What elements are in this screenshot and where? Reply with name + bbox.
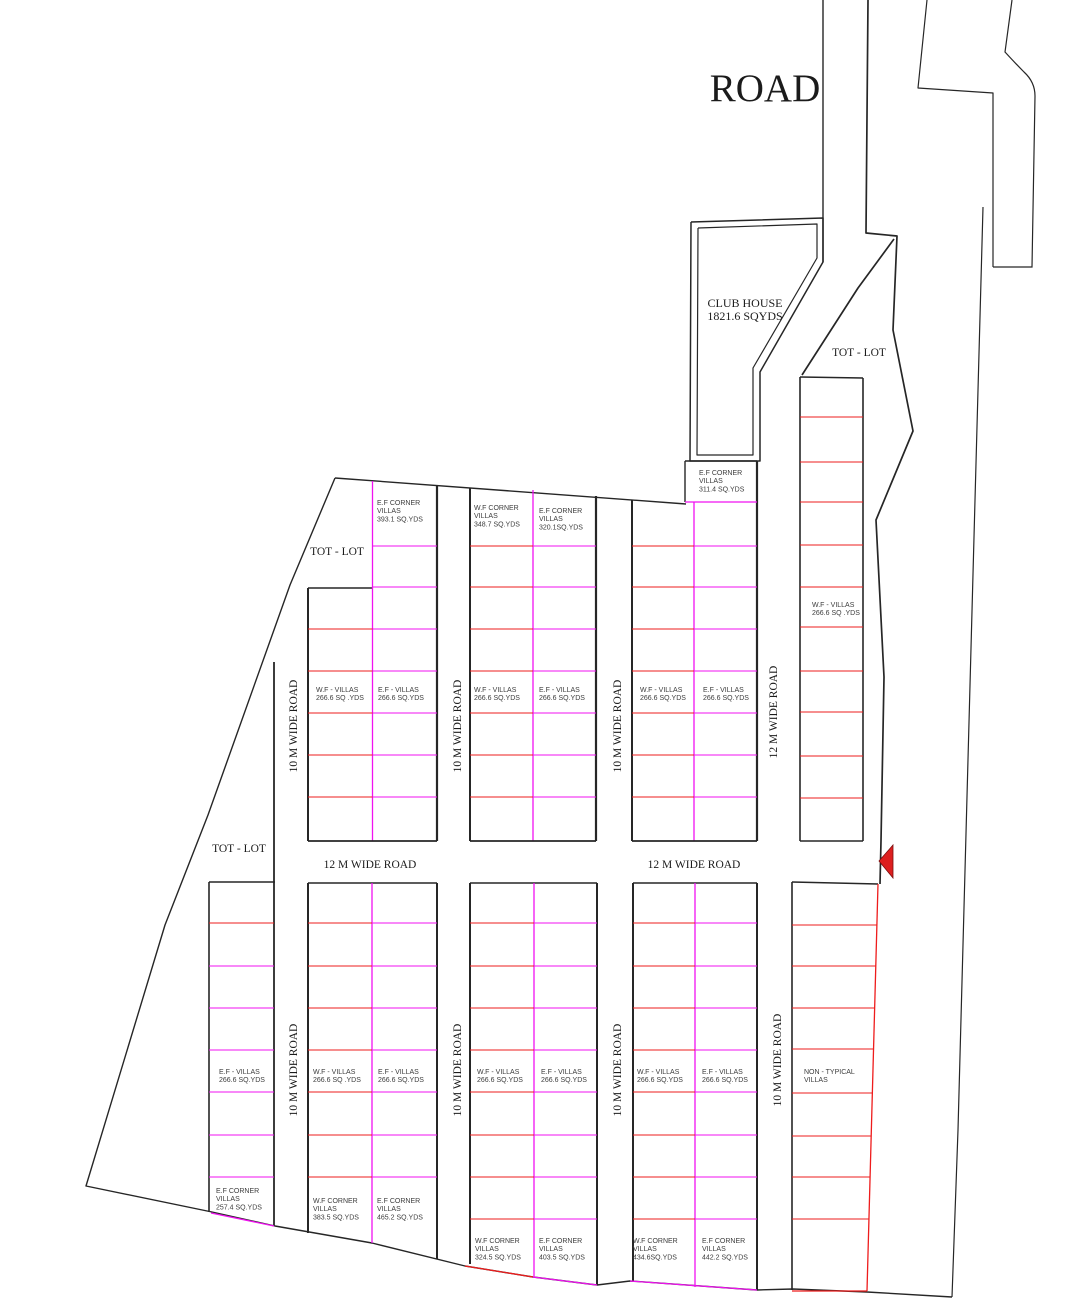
plot-label-wf-villas-c-line-1: 266.6 SQ.YDS <box>640 695 686 702</box>
plot-label-wf-corner-348-line-1: VILLAS <box>474 513 498 520</box>
plot-label-non-typical-line-1: VILLAS <box>804 1077 828 1084</box>
club-house-inner <box>697 224 817 455</box>
plot-label-ef-villas-sw-line-0: E.F - VILLAS <box>219 1069 260 1076</box>
plot-label-ef-corner-465-line-1: VILLAS <box>377 1206 401 1213</box>
plot-label-wf-villas-a-line-0: W.F - VILLAS <box>316 687 359 694</box>
plot-label-ef-corner-320-line-2: 320.1SQ.YDS <box>539 524 583 531</box>
road-label-10m-top-3: 10 M WIDE ROAD <box>612 680 624 773</box>
plot-label-ef-corner-465-line-2: 465.2 SQ.YDS <box>377 1214 423 1221</box>
plot-label-wf-villas-ne-line-1: 266.6 SQ .YDS <box>812 610 860 617</box>
road-title: ROAD <box>710 67 821 110</box>
plot-label-wf-corner-434-line-1: VILLAS <box>633 1246 657 1253</box>
plot-label-wf-corner-434-line-2: 434.6SQ.YDS <box>633 1254 677 1261</box>
site-boundary-west-south <box>86 478 952 1297</box>
tot-lot-label-ne: TOT - LOT <box>832 347 886 359</box>
plot-label-wf-corner-324-line-1: VILLAS <box>475 1246 499 1253</box>
plot-label-wf-villas-b-line-1: 266.6 SQ.YDS <box>474 695 520 702</box>
far-east-boundary <box>952 207 983 1297</box>
road-label-10m-bot-1: 10 M WIDE ROAD <box>288 1024 300 1117</box>
plot-label-ef-villas-b4-line-1: 266.6 SQ.YDS <box>702 1077 748 1084</box>
plot-label-wf-villas-b2-line-0: W.F - VILLAS <box>313 1069 356 1076</box>
plot-boundary-overlay <box>465 1266 533 1277</box>
plot-label-ef-villas-c-line-1: 266.6 SQ.YDS <box>703 695 749 702</box>
plot-label-non-typical-line-0: NON - TYPICAL <box>804 1069 855 1076</box>
plot-label-ef-corner-320-line-1: VILLAS <box>539 516 563 523</box>
plot-label-ef-corner-311-line-0: E.F CORNER <box>699 470 742 477</box>
road-label-12m-vert: 12 M WIDE ROAD <box>768 666 780 759</box>
plot-label-wf-villas-c-line-0: W.F - VILLAS <box>640 687 683 694</box>
plot-label-ef-villas-a-line-0: E.F - VILLAS <box>378 687 419 694</box>
plot-label-ef-villas-c-line-0: E.F - VILLAS <box>703 687 744 694</box>
plot-label-ef-villas-sw-line-1: 266.6 SQ.YDS <box>219 1077 265 1084</box>
plot-label-ef-corner-403-line-0: E.F CORNER <box>539 1238 582 1245</box>
block-edge <box>800 377 863 378</box>
tot-lot-label-sw: TOT - LOT <box>212 843 266 855</box>
road-label-12m-horiz-west: 12 M WIDE ROAD <box>324 859 417 871</box>
plan-geometry <box>86 0 1035 1297</box>
plot-label-ef-corner-465-line-0: E.F CORNER <box>377 1198 420 1205</box>
plot-label-wf-villas-b3-line-1: 266.6 SQ.YDS <box>477 1077 523 1084</box>
plot-label-ef-villas-b-line-1: 266.6 SQ.YDS <box>539 695 585 702</box>
plot-label-wf-corner-434-line-0: W.F CORNER <box>633 1238 678 1245</box>
plot-label-ef-corner-393-line-0: E.F CORNER <box>377 500 420 507</box>
plot-label-ef-corner-257-line-0: E.F CORNER <box>216 1188 259 1195</box>
plot-label-ef-corner-257-line-2: 257.4 SQ.YDS <box>216 1204 262 1211</box>
plot-label-ef-corner-442-line-2: 442.2 SQ.YDS <box>702 1254 748 1261</box>
road-label-10m-top-2: 10 M WIDE ROAD <box>452 680 464 773</box>
plot-label-wf-corner-383-line-0: W.F CORNER <box>313 1198 358 1205</box>
plot-label-ef-villas-b3-line-1: 266.6 SQ.YDS <box>541 1077 587 1084</box>
plot-label-ef-corner-442-line-1: VILLAS <box>702 1246 726 1253</box>
plot-label-ef-villas-b2-line-1: 266.6 SQ.YDS <box>378 1077 424 1084</box>
plot-label-wf-villas-b4-line-1: 266.6 SQ.YDS <box>637 1077 683 1084</box>
plot-label-wf-corner-348-line-0: W.F CORNER <box>474 505 519 512</box>
road-band-outer-edge <box>993 0 1035 267</box>
plot-label-ef-villas-b-line-0: E.F - VILLAS <box>539 687 580 694</box>
plot-label-wf-villas-b3-line-0: W.F - VILLAS <box>477 1069 520 1076</box>
plot-label-ef-villas-b3-line-0: E.F - VILLAS <box>541 1069 582 1076</box>
road-label-12m-horiz-east: 12 M WIDE ROAD <box>648 859 741 871</box>
plot-label-ef-corner-403-line-1: VILLAS <box>539 1246 563 1253</box>
plot-label-ef-corner-393-line-2: 393.1 SQ.YDS <box>377 516 423 523</box>
plot-label-wf-villas-a-line-1: 266.6 SQ .YDS <box>316 695 364 702</box>
road-band-inner-edge <box>918 0 993 267</box>
plan-labels: ROADCLUB HOUSE1821.6 SQYDSTOT - LOTTOT -… <box>212 67 886 1261</box>
plot-label-ef-corner-320-line-0: E.F CORNER <box>539 508 582 515</box>
plot-label-ef-corner-403-line-2: 403.5 SQ.YDS <box>539 1254 585 1261</box>
plot-label-wf-corner-383-line-1: VILLAS <box>313 1206 337 1213</box>
east-inner-boundary <box>866 0 913 884</box>
plot-label-wf-corner-383-line-2: 383.5 SQ.YDS <box>313 1214 359 1221</box>
plot-label-wf-villas-b-line-0: W.F - VILLAS <box>474 687 517 694</box>
road-label-10m-bot-3: 10 M WIDE ROAD <box>612 1024 624 1117</box>
plot-label-ef-corner-257-line-1: VILLAS <box>216 1196 240 1203</box>
plot-label-wf-villas-ne-line-0: W.F - VILLAS <box>812 602 855 609</box>
plot-boundary-overlay <box>630 1281 757 1290</box>
plot-label-ef-corner-393-line-1: VILLAS <box>377 508 401 515</box>
block-edge-red <box>867 884 878 1291</box>
plot-label-ef-villas-a-line-1: 266.6 SQ.YDS <box>378 695 424 702</box>
site-plan-canvas: ROADCLUB HOUSE1821.6 SQYDSTOT - LOTTOT -… <box>0 0 1066 1302</box>
plot-label-wf-corner-324-line-0: W.F CORNER <box>475 1238 520 1245</box>
plot-label-wf-villas-b2-line-1: 266.6 SQ .YDS <box>313 1077 361 1084</box>
plot-label-ef-corner-442-line-0: E.F CORNER <box>702 1238 745 1245</box>
plot-label-ef-corner-311-line-1: VILLAS <box>699 478 723 485</box>
block-edge <box>792 882 878 884</box>
tot-lot-label-west: TOT - LOT <box>310 546 364 558</box>
plot-boundary-overlay <box>533 1277 597 1285</box>
plot-label-ef-corner-311-line-2: 311.4 SQ.YDS <box>699 486 745 493</box>
club-house-label-line-1: 1821.6 SQYDS <box>707 309 782 323</box>
site-plan-svg: ROADCLUB HOUSE1821.6 SQYDSTOT - LOTTOT -… <box>0 0 1066 1302</box>
road-label-10m-bot-4: 10 M WIDE ROAD <box>772 1014 784 1107</box>
plot-label-wf-villas-b4-line-0: W.F - VILLAS <box>637 1069 680 1076</box>
plot-label-ef-villas-b4-line-0: E.F - VILLAS <box>702 1069 743 1076</box>
plot-label-ef-villas-b2-line-0: E.F - VILLAS <box>378 1069 419 1076</box>
road-label-10m-bot-2: 10 M WIDE ROAD <box>452 1024 464 1117</box>
plot-label-wf-corner-324-line-2: 324.5 SQ.YDS <box>475 1254 521 1261</box>
club-house-outer <box>690 218 823 461</box>
road-label-10m-top-1: 10 M WIDE ROAD <box>288 680 300 773</box>
plot-label-wf-corner-348-line-2: 348.7 SQ.YDS <box>474 521 520 528</box>
plot-boundary-overlay <box>211 1213 274 1226</box>
